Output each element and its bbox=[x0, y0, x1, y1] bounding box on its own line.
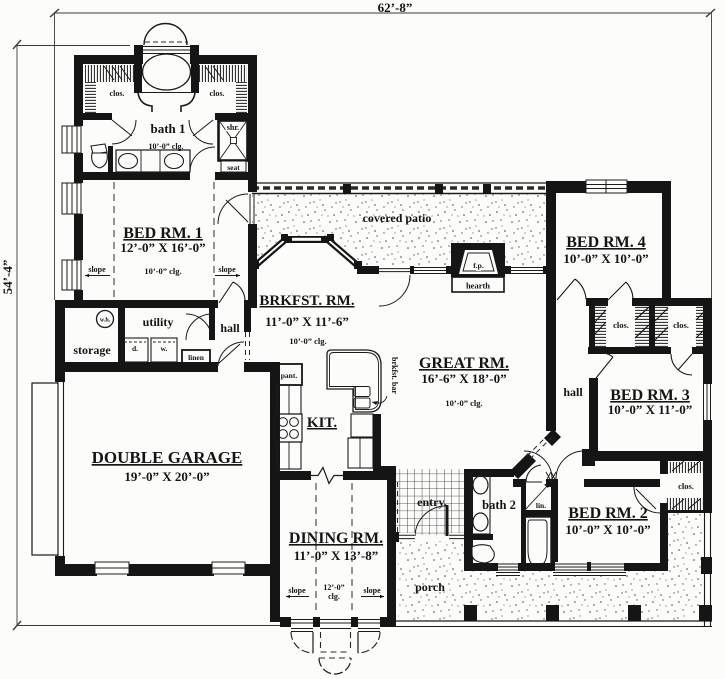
svg-text:pant.: pant. bbox=[281, 371, 298, 380]
svg-text:slope: slope bbox=[363, 586, 381, 595]
svg-text:KIT.: KIT. bbox=[307, 415, 337, 431]
svg-text:19’-0” X 20’-0”: 19’-0” X 20’-0” bbox=[124, 469, 209, 484]
svg-text:slope: slope bbox=[288, 586, 306, 595]
svg-text:linen: linen bbox=[188, 353, 205, 362]
svg-text:clos.: clos. bbox=[678, 481, 694, 491]
svg-text:f.p.: f.p. bbox=[473, 261, 484, 270]
svg-text:covered patio: covered patio bbox=[363, 211, 432, 225]
svg-text:62’-8”: 62’-8” bbox=[378, 0, 413, 15]
svg-text:slope: slope bbox=[88, 265, 106, 274]
svg-text:clos.: clos. bbox=[613, 320, 629, 330]
svg-text:10’-0” X 10’-0”: 10’-0” X 10’-0” bbox=[565, 522, 650, 537]
svg-text:entry.: entry. bbox=[417, 495, 447, 509]
svg-text:clg.: clg. bbox=[328, 592, 340, 601]
svg-text:10’-0” clg.: 10’-0” clg. bbox=[289, 336, 326, 346]
svg-text:clos.: clos. bbox=[110, 89, 125, 98]
svg-text:slope: slope bbox=[218, 265, 236, 274]
svg-text:DOUBLE GARAGE: DOUBLE GARAGE bbox=[92, 448, 243, 467]
svg-text:54’-4”: 54’-4” bbox=[0, 260, 15, 295]
svg-text:10’-0” X 10’-0”: 10’-0” X 10’-0” bbox=[563, 251, 648, 266]
svg-text:bath 1: bath 1 bbox=[150, 121, 185, 136]
svg-text:d.: d. bbox=[132, 344, 138, 353]
svg-text:storage: storage bbox=[73, 343, 111, 357]
svg-text:w.: w. bbox=[161, 344, 168, 353]
svg-text:GREAT RM.: GREAT RM. bbox=[419, 355, 509, 372]
svg-text:clos.: clos. bbox=[210, 89, 225, 98]
svg-text:10’-0” clg.: 10’-0” clg. bbox=[144, 266, 181, 276]
svg-text:hall: hall bbox=[563, 385, 583, 399]
svg-text:utility: utility bbox=[143, 315, 174, 329]
svg-text:w.h.: w.h. bbox=[100, 318, 111, 324]
svg-text:10’-0” X 11’-0”: 10’-0” X 11’-0” bbox=[608, 402, 693, 417]
svg-text:brkfst. bar: brkfst. bar bbox=[390, 357, 399, 394]
svg-text:bath 2: bath 2 bbox=[482, 498, 516, 512]
svg-text:shr.: shr. bbox=[227, 123, 239, 132]
svg-text:12’-0” X 16’-0”: 12’-0” X 16’-0” bbox=[120, 240, 205, 255]
svg-text:DINING RM.: DINING RM. bbox=[289, 530, 383, 547]
svg-text:11’-0” X 11’-6”: 11’-0” X 11’-6” bbox=[265, 314, 349, 329]
svg-text:hearth: hearth bbox=[466, 281, 490, 291]
svg-text:BED RM. 4: BED RM. 4 bbox=[566, 234, 646, 251]
svg-text:16’-6” X 18’-0”: 16’-6” X 18’-0” bbox=[421, 371, 506, 386]
svg-text:BRKFST. RM.: BRKFST. RM. bbox=[259, 293, 354, 309]
svg-text:10’-0” clg.: 10’-0” clg. bbox=[445, 398, 482, 408]
svg-text:seat: seat bbox=[227, 163, 240, 172]
svg-text:lin.: lin. bbox=[536, 501, 546, 510]
svg-text:BED RM. 2: BED RM. 2 bbox=[568, 505, 648, 522]
svg-text:hall: hall bbox=[220, 321, 240, 335]
svg-text:10’-0” clg.: 10’-0” clg. bbox=[148, 142, 183, 151]
svg-text:clos.: clos. bbox=[673, 320, 689, 330]
svg-text:11’-0” X 13’-8”: 11’-0” X 13’-8” bbox=[294, 548, 379, 563]
svg-text:porch: porch bbox=[415, 580, 445, 594]
svg-text:12’-0”: 12’-0” bbox=[323, 583, 344, 592]
